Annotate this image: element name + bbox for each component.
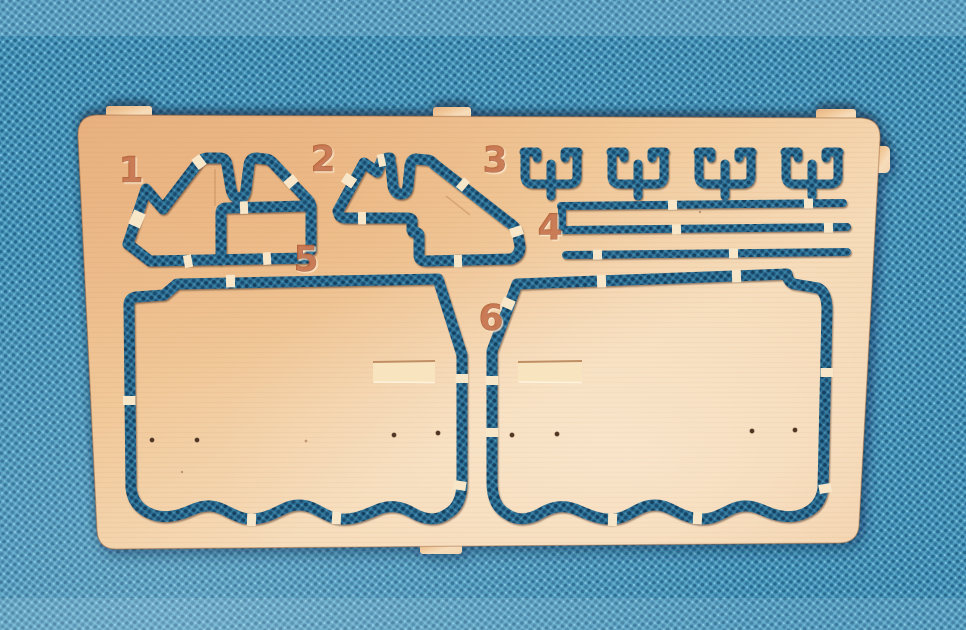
part-label-6: 6 xyxy=(478,298,503,339)
fret-plate: 1 2 3 4 5 6 xyxy=(70,105,890,555)
top-light-band xyxy=(0,0,966,36)
part-label-5: 5 xyxy=(293,239,318,280)
bottom-light-band xyxy=(0,598,966,630)
part-label-3: 3 xyxy=(482,140,507,181)
photo-etch-fret-photo: 1 2 3 4 5 6 xyxy=(0,0,966,630)
half-etch-plate-left xyxy=(373,361,435,383)
scene-svg: 1 2 3 4 5 6 xyxy=(0,0,966,630)
part-label-1: 1 xyxy=(118,150,143,191)
part-label-4: 4 xyxy=(537,207,562,248)
half-etch-plate-right xyxy=(518,361,582,383)
part-label-2: 2 xyxy=(310,139,335,180)
